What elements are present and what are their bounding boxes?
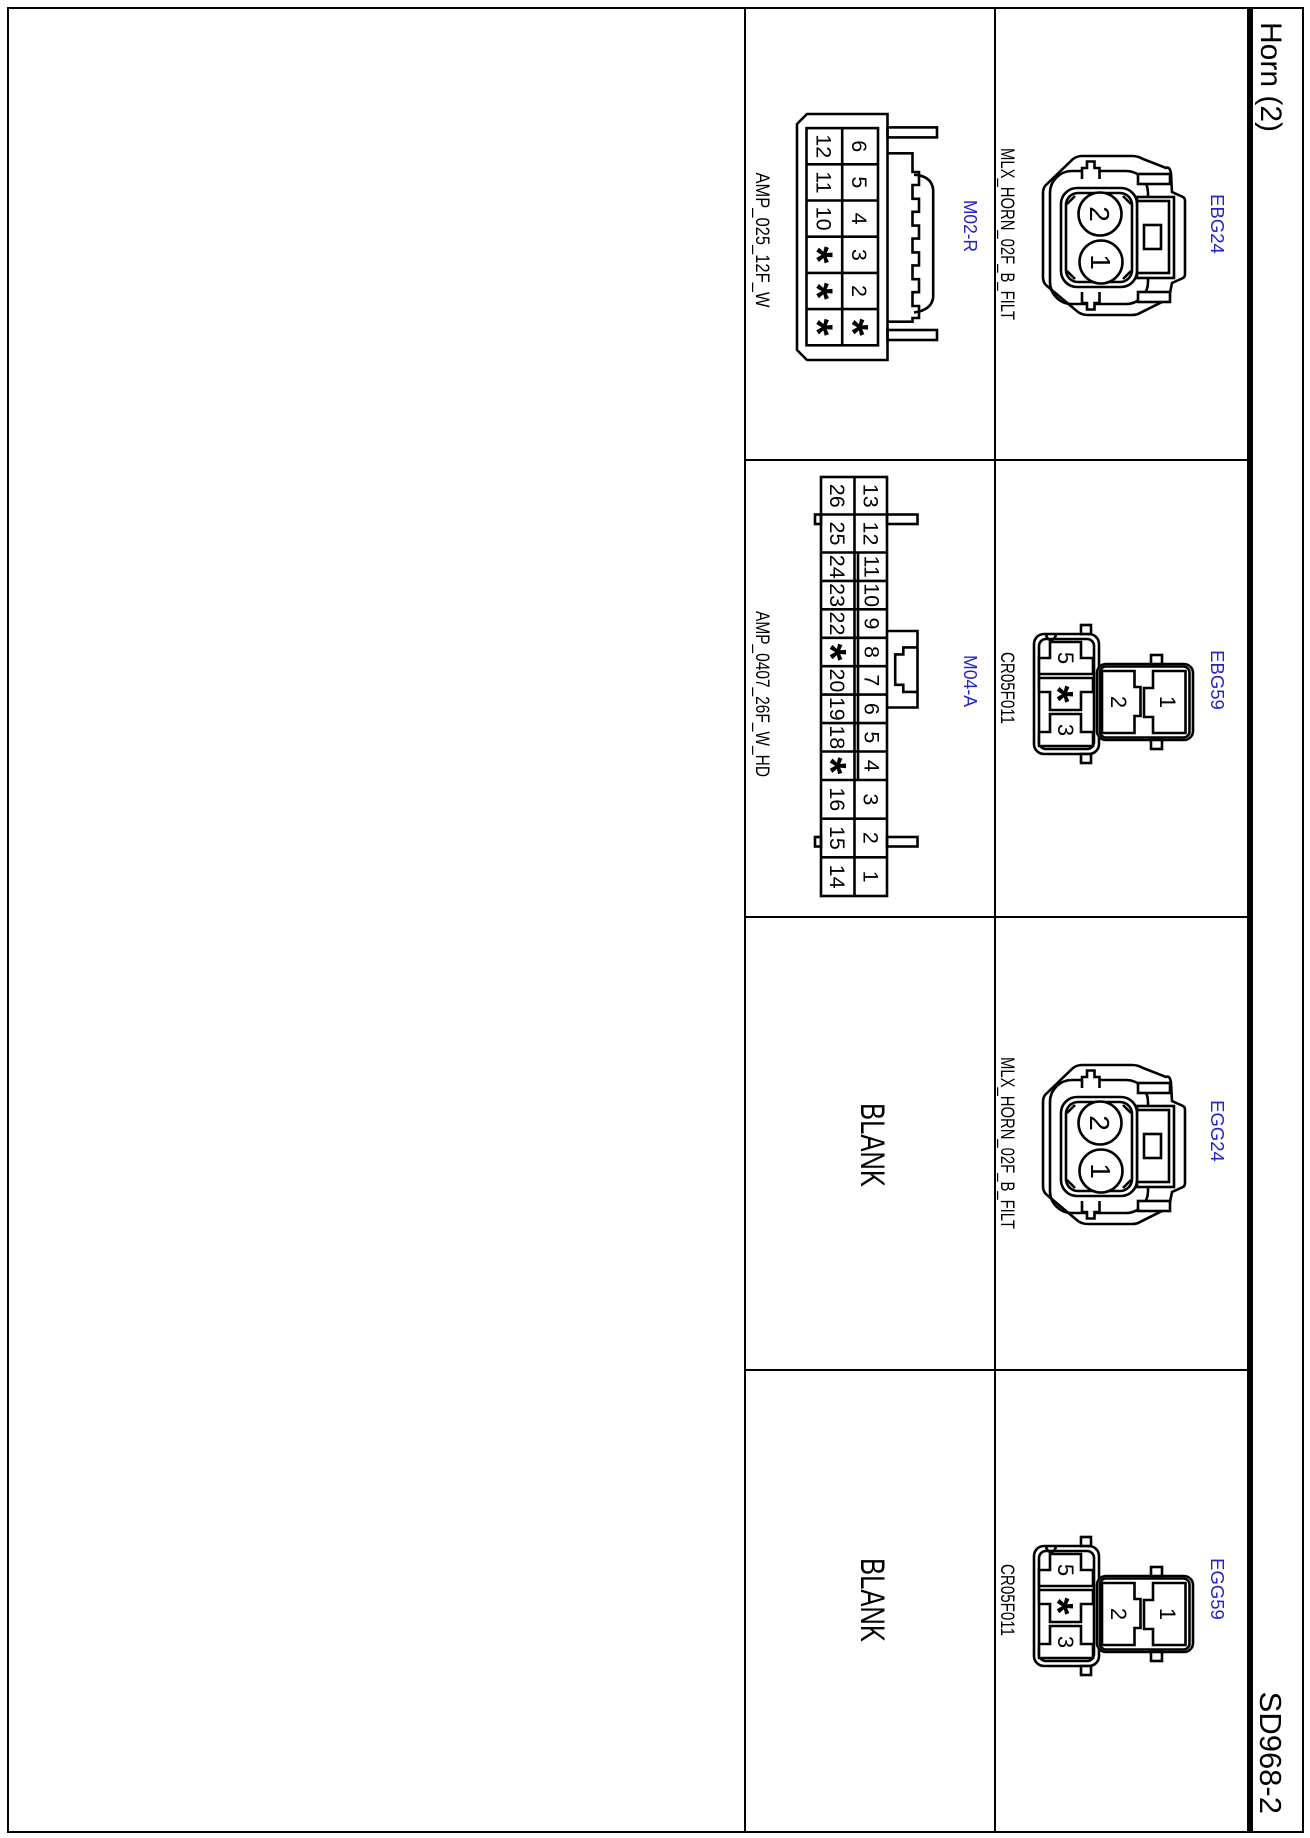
svg-text:4: 4	[860, 760, 884, 772]
svg-text:M04-A: M04-A	[960, 655, 981, 708]
svg-text:2: 2	[859, 832, 883, 844]
svg-text:10: 10	[860, 583, 884, 607]
svg-text:5: 5	[847, 176, 871, 188]
svg-text:23: 23	[825, 583, 849, 607]
svg-text:SD968-2: SD968-2	[1253, 1692, 1288, 1814]
svg-text:AMP_025_12F_W: AMP_025_12F_W	[751, 173, 772, 308]
svg-text:*: *	[793, 282, 842, 300]
svg-text:7: 7	[860, 674, 884, 686]
svg-text:EBG59: EBG59	[1207, 650, 1228, 710]
svg-text:3: 3	[859, 793, 883, 805]
svg-text:16: 16	[825, 787, 849, 811]
svg-text:EGG59: EGG59	[1207, 1558, 1228, 1620]
svg-text:MLX_HORN_02F_B_FILT: MLX_HORN_02F_B_FILT	[996, 1057, 1017, 1229]
svg-text:24: 24	[825, 555, 849, 579]
svg-text:12: 12	[812, 134, 836, 158]
svg-text:CR05F011: CR05F011	[996, 1564, 1017, 1636]
svg-text:26: 26	[825, 484, 849, 508]
svg-text:*: *	[793, 319, 842, 337]
svg-text:11: 11	[860, 556, 884, 578]
svg-text:1: 1	[1085, 254, 1116, 270]
svg-text:EGG24: EGG24	[1207, 1100, 1228, 1162]
svg-text:13: 13	[859, 484, 883, 508]
svg-text:*: *	[806, 643, 855, 661]
svg-text:22: 22	[825, 612, 849, 636]
svg-text:*: *	[793, 246, 842, 264]
svg-text:6: 6	[860, 703, 884, 715]
svg-text:2: 2	[1106, 696, 1131, 708]
svg-text:1: 1	[1155, 696, 1180, 708]
svg-text:1: 1	[859, 871, 883, 883]
svg-text:4: 4	[847, 213, 871, 225]
svg-text:3: 3	[847, 249, 871, 261]
svg-text:AMP_0407_26F_W_HD: AMP_0407_26F_W_HD	[751, 611, 772, 777]
svg-text:3: 3	[1053, 724, 1078, 736]
svg-text:25: 25	[825, 522, 849, 546]
svg-text:5: 5	[860, 731, 884, 743]
svg-text:12: 12	[859, 522, 883, 546]
svg-text:Horn (2): Horn (2)	[1254, 22, 1287, 132]
svg-text:8: 8	[860, 646, 884, 658]
svg-text:*: *	[806, 757, 855, 775]
svg-text:5: 5	[1053, 652, 1078, 664]
svg-text:19: 19	[825, 697, 849, 721]
svg-text:10: 10	[812, 207, 836, 231]
svg-text:9: 9	[860, 618, 884, 630]
svg-text:6: 6	[847, 140, 871, 152]
svg-text:BLANK: BLANK	[853, 1558, 891, 1642]
svg-text:15: 15	[825, 826, 849, 850]
svg-text:14: 14	[825, 865, 849, 889]
svg-text:2: 2	[1084, 206, 1115, 222]
svg-text:CR05F011: CR05F011	[996, 652, 1017, 724]
svg-text:BLANK: BLANK	[853, 1103, 891, 1187]
svg-text:18: 18	[825, 725, 849, 749]
svg-text:20: 20	[825, 668, 849, 692]
svg-text:2: 2	[847, 285, 871, 297]
svg-text:11: 11	[812, 171, 836, 193]
svg-text:*: *	[1033, 685, 1082, 703]
svg-text:MLX_HORN_02F_B_FILT: MLX_HORN_02F_B_FILT	[996, 148, 1017, 320]
svg-text:M02-R: M02-R	[960, 200, 981, 252]
svg-text:EBG24: EBG24	[1207, 194, 1228, 254]
